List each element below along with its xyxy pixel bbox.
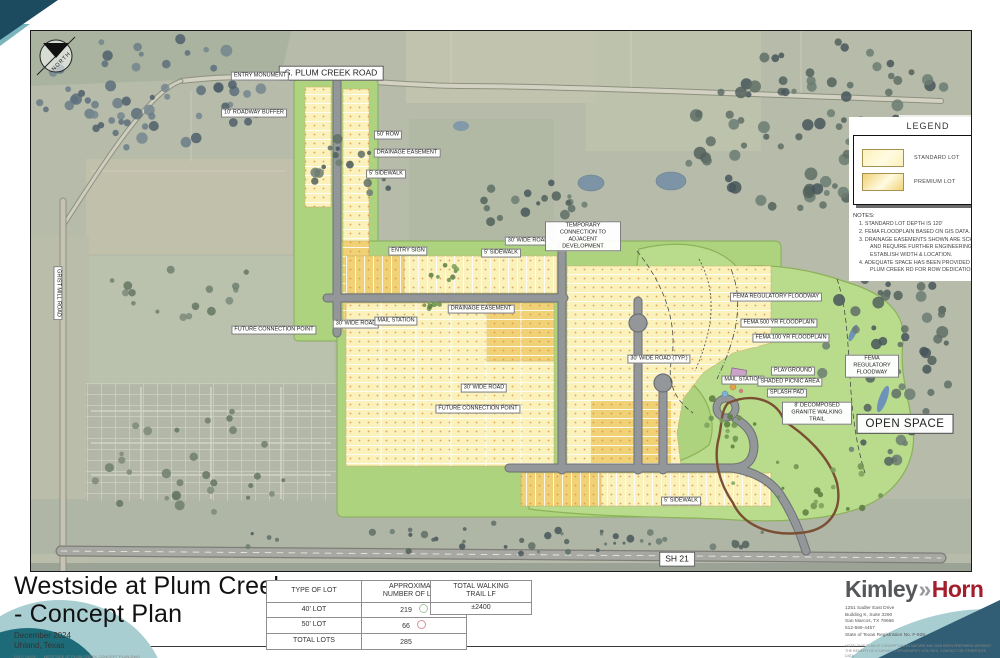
kimley-horn-block: Kimley»Horn 1251 Sadler East Drive Build… xyxy=(845,576,995,658)
map-label: 8' DECOMPOSED GRANITE WALKING TRAIL xyxy=(782,402,852,425)
map-label: FEMA REGULATORY FLOODWAY xyxy=(730,293,822,302)
legend-box: STANDARD LOT PREMIUM LOT xyxy=(853,135,972,205)
table-row: TOTAL LOTS 285 xyxy=(267,634,467,650)
map-label: 50' ROW xyxy=(374,131,402,140)
map-label: OPEN SPACE xyxy=(857,414,954,434)
plan-sheet: S. PLUM CREEK ROADENTRY MONUMENT10' ROAD… xyxy=(0,0,1000,658)
map-label: 30' WIDE ROAD xyxy=(461,384,507,393)
map-label: FEMA REGULATORY FLOODWAY xyxy=(845,355,899,378)
note-item: FEMA FLOODPLAIN BASED ON GIS DATA. xyxy=(859,229,972,236)
legend-item: STANDARD LOT xyxy=(862,149,972,167)
map-label-layer: S. PLUM CREEK ROADENTRY MONUMENT10' ROAD… xyxy=(31,31,971,571)
north-arrow-icon: NORTH xyxy=(31,31,81,81)
standard-lot-swatch xyxy=(862,149,904,167)
map-label: SH 21 xyxy=(659,552,695,567)
map-label: 10' ROADWAY BUFFER xyxy=(221,109,287,118)
col-header: TOTAL WALKING TRAIL LF xyxy=(431,581,532,603)
map-label: SHADED PICNIC AREA xyxy=(757,378,822,387)
notes-list: NOTES: STANDARD LOT DEPTH IS 120' FEMA F… xyxy=(853,213,972,274)
map-label: PLAYGROUND xyxy=(771,367,815,376)
map-label: 30' WIDE ROAD xyxy=(333,320,379,329)
map-label: FEMA 500 YR FLOODPLAIN xyxy=(740,319,817,328)
table-row: ±2400 xyxy=(431,602,532,615)
map-label: MAIL STATION xyxy=(374,317,417,326)
map-label: ENTRY MONUMENT xyxy=(231,72,289,81)
firm-disclaimer: NOTE: THIS PLAN IS CONCEPTUAL IN NATURE … xyxy=(845,644,995,658)
map-label: 5' SIDEWALK xyxy=(366,170,406,179)
map-label: 5' SIDEWALK xyxy=(481,249,521,258)
map-label: DRAINAGE EASEMENT xyxy=(448,305,515,314)
walking-trail-table: TOTAL WALKING TRAIL LF ±2400 xyxy=(430,580,532,615)
map-label: 30' WIDE ROAD (TYP.) xyxy=(627,355,690,364)
legend-panel: LEGEND STANDARD LOT PREMIUM LOT NOTES: S… xyxy=(849,117,972,281)
note-item: STANDARD LOT DEPTH IS 120' xyxy=(859,221,972,228)
lot-marker-icon xyxy=(417,620,426,629)
map-label: S. PLUM CREEK ROAD xyxy=(279,66,384,81)
map-label: GRIST MILL ROAD xyxy=(54,266,63,320)
plot-stamp: DWG NAME:WESTSIDE AT PLUM CREEK CONCEPT … xyxy=(14,654,286,658)
map-label: TEMPORARY CONNECTION TO ADJACENT DEVELOP… xyxy=(545,221,621,251)
sheet-location: Uhland, Texas xyxy=(14,641,286,650)
map-label: FEMA 100 YR FLOODPLAIN xyxy=(752,334,829,343)
map-label: FUTURE CONNECTION POINT xyxy=(435,405,520,414)
concept-plan-map: S. PLUM CREEK ROADENTRY MONUMENT10' ROAD… xyxy=(30,30,972,572)
premium-lot-swatch xyxy=(862,173,904,191)
map-label: ENTRY SIGN xyxy=(388,247,427,256)
note-item: DRAINAGE EASEMENTS SHOWN ARE SCHEMATIC A… xyxy=(859,237,972,258)
map-label: FUTURE CONNECTION POINT xyxy=(231,326,316,335)
firm-address: 1251 Sadler East Drive Building K, Suite… xyxy=(845,606,995,640)
title-block: Westside at Plum Creek - Concept Plan De… xyxy=(14,572,286,658)
legend-item: PREMIUM LOT xyxy=(862,173,972,191)
map-label: SPLASH PAD xyxy=(767,389,807,398)
map-label: 5' SIDEWALK xyxy=(661,497,701,506)
col-header: TYPE OF LOT xyxy=(267,581,362,603)
page-title: Westside at Plum Creek - Concept Plan xyxy=(14,572,286,628)
note-item: ADEQUATE SPACE HAS BEEN PROVIDED ALONG P… xyxy=(859,260,972,274)
lot-marker-icon xyxy=(419,604,428,613)
table-row: 50' LOT 66 xyxy=(267,618,467,634)
sheet-date: December 2024 xyxy=(14,631,286,640)
map-label: DRAINAGE EASEMENT xyxy=(374,149,441,158)
legend-title: LEGEND xyxy=(853,121,972,131)
kimley-horn-logo: Kimley»Horn xyxy=(845,576,995,603)
